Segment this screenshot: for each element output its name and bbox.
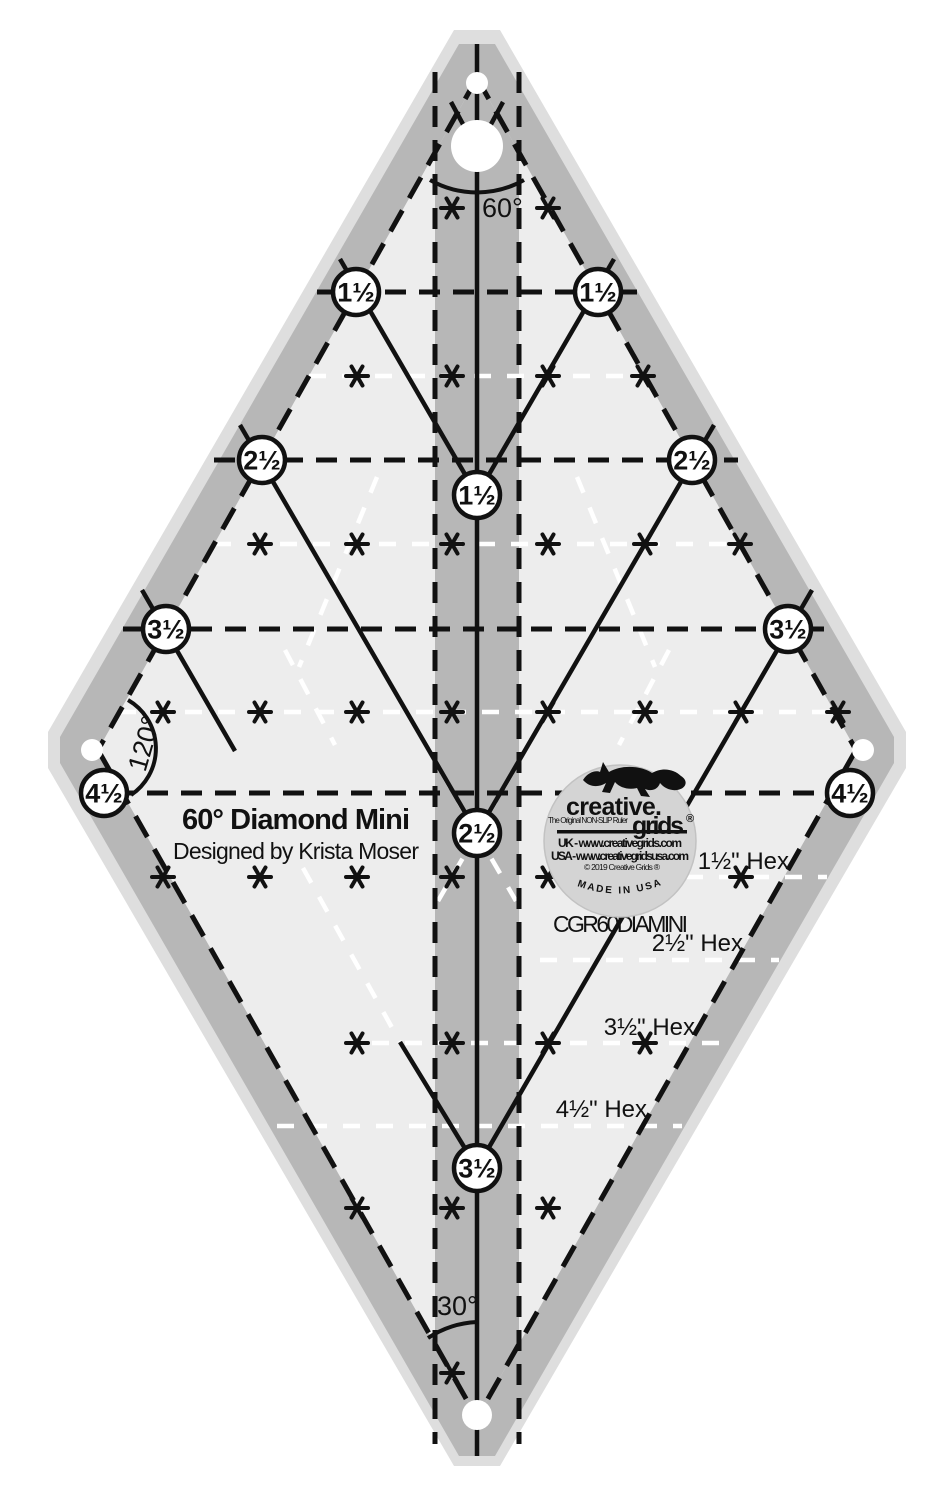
product-image-60-diamond-mini-ruler: 1½1½2½2½3½3½4½4½1½2½3½ 60° 120° 30° 60° … [0,0,949,1500]
size-marker-3half: 3½ [143,606,189,652]
size-marker-4half: 4½ [827,770,873,816]
size-marker-3half: 3½ [765,606,811,652]
size-marker-1half: 1½ [333,269,379,315]
logo-uk-line: UK - www.creativegrids.com [558,836,682,850]
svg-text:1½: 1½ [337,278,375,308]
svg-text:4½: 4½ [831,779,869,809]
svg-text:3½: 3½ [147,615,185,645]
hole-left [81,739,103,761]
hole-top-small [466,72,488,94]
hex-label-2: 2½" Hex [652,930,743,957]
hex-label-3: 3½" Hex [604,1014,695,1041]
logo-usa-line: USA - www.creativegridsusa.com [551,849,689,863]
svg-text:3½: 3½ [769,615,807,645]
ruler-graphic: 1½1½2½2½3½3½4½4½1½2½3½ 60° 120° 30° 60° … [0,0,949,1500]
hex-label-4: 4½" Hex [556,1096,647,1123]
logo-tagline: The Original NON-SLIP Ruler [548,816,628,825]
svg-text:2½: 2½ [243,446,281,476]
angle-label-bottom: 30° [437,1291,478,1321]
ruler-subtitle: Designed by Krista Moser [173,838,419,864]
size-marker-3half: 3½ [454,1145,500,1191]
size-marker-2half: 2½ [454,810,500,856]
logo-copyright: © 2019 Creative Grids ® [584,862,661,872]
svg-text:2½: 2½ [673,446,711,476]
hole-bottom [462,1400,492,1430]
size-marker-1half: 1½ [575,269,621,315]
size-marker-1half: 1½ [454,472,500,518]
ruler-title: 60° Diamond Mini [182,804,410,836]
svg-text:2½: 2½ [458,819,496,849]
size-marker-2half: 2½ [669,437,715,483]
size-marker-2half: 2½ [239,437,285,483]
hole-top-large [451,120,503,172]
size-marker-4half: 4½ [81,770,127,816]
angle-label-top: 60° [482,193,523,223]
svg-text:4½: 4½ [85,779,123,809]
hex-label-1: 1½" Hex [698,848,789,875]
svg-text:3½: 3½ [458,1154,496,1184]
svg-text:1½: 1½ [458,481,496,511]
svg-text:1½: 1½ [579,278,617,308]
hole-right [852,739,874,761]
logo-registered-mark: ® [686,813,694,825]
